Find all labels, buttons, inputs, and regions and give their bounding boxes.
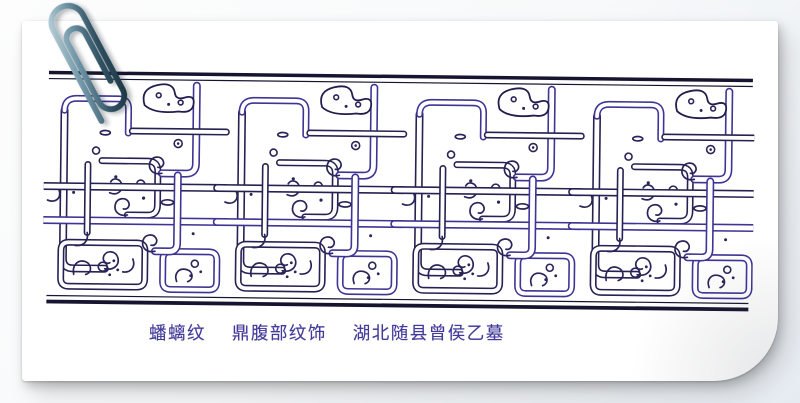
- caption-pattern-name: 蟠螭纹: [149, 320, 206, 345]
- caption-provenance: 湖北随县曾侯乙墓: [353, 320, 505, 345]
- caption: 蟠螭纹 鼎腹部纹饰 湖北随县曾侯乙墓: [149, 320, 505, 345]
- ornament-artwork: [42, 70, 755, 312]
- photo-card: 蟠螭纹 鼎腹部纹饰 湖北随县曾侯乙墓: [22, 21, 778, 381]
- page-background: { "card": { "caption": { "pattern_name":…: [0, 0, 800, 403]
- caption-object-part: 鼎腹部纹饰: [232, 320, 327, 345]
